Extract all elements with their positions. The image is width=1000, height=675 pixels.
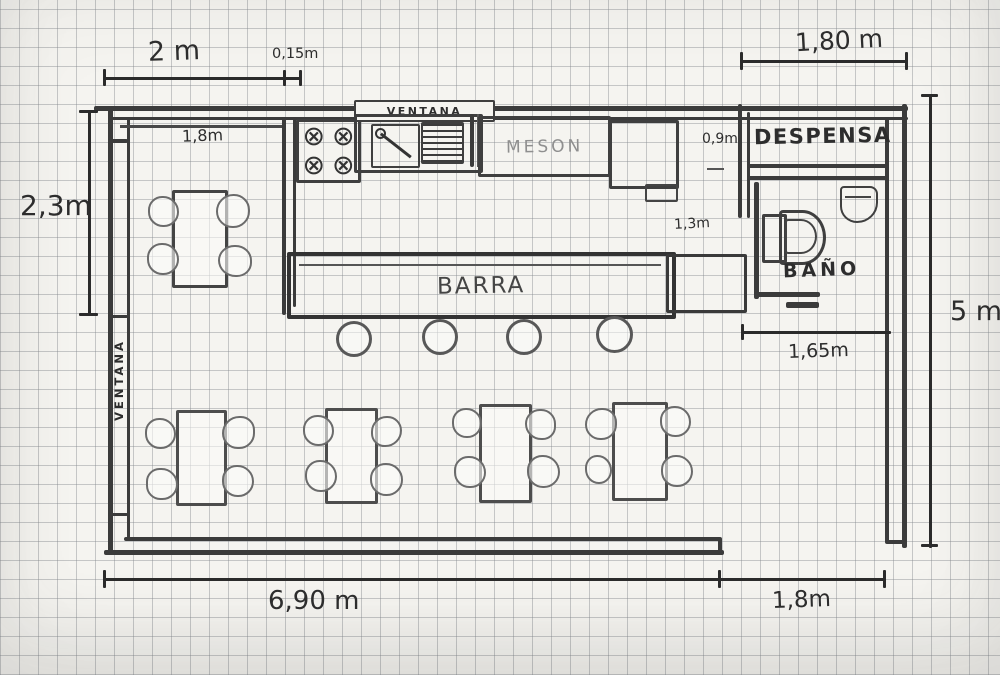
chair	[370, 463, 403, 496]
bar-counter: BARRA	[287, 252, 676, 319]
meson-label: MESON	[506, 136, 584, 157]
dim-tick	[103, 69, 106, 86]
bar-label: BARRA	[437, 272, 526, 300]
sink-basin	[371, 124, 420, 168]
stove-burner-icon: ⊗	[332, 123, 355, 150]
dim-label-kitchen-depth: 2,3m	[20, 192, 92, 220]
wall-bottom-outer	[104, 550, 724, 555]
toilet-bowl	[779, 210, 826, 265]
counter-divider-1	[470, 114, 474, 167]
kitchen-inner-tick	[108, 139, 128, 143]
dim-tick	[299, 70, 302, 86]
dim-tick	[740, 52, 743, 70]
drainboard	[421, 122, 464, 164]
chair	[305, 460, 337, 492]
dim-label-wall-thickness: 0,15m	[272, 47, 318, 62]
bath-sink-inner-line	[845, 196, 871, 198]
pantry-wall-bottom-1	[747, 164, 889, 168]
wall-bottom-end-cap	[718, 537, 722, 555]
kitchen-partition-outer	[282, 117, 286, 315]
stove-burner-icon: ⊗	[302, 123, 325, 150]
passage-dash	[707, 168, 724, 170]
toilet-bowl-inner	[785, 219, 817, 254]
bar-stool	[336, 321, 372, 357]
pantry-wall-bottom-2	[747, 176, 889, 180]
dim-label-bath-width: 1,65m	[788, 341, 849, 362]
dim-tick	[741, 324, 744, 340]
bathroom-label: BAÑO	[783, 260, 861, 282]
bar-stool	[596, 316, 633, 353]
wall-top-outer	[94, 106, 908, 111]
dim-line-top-left	[104, 77, 285, 80]
stove-burner-icon: ⊗	[302, 152, 325, 179]
chair	[454, 456, 486, 488]
dim-line-top-right	[741, 60, 908, 63]
fridge-handle	[645, 184, 678, 202]
dim-tick	[718, 570, 721, 588]
passage-dim-label: 0,9m	[702, 132, 738, 146]
chair	[218, 245, 252, 277]
bar-stool	[506, 319, 542, 355]
dining-table	[176, 410, 227, 506]
wall-right-inner	[885, 117, 889, 543]
meson-counter: MESON	[478, 116, 611, 177]
wall-right-outer	[902, 104, 907, 548]
chair	[525, 409, 556, 440]
dim-tick	[921, 544, 938, 547]
bath-offset-dim-label: 1,3m	[674, 216, 711, 232]
bathroom-wall-bottom	[754, 292, 820, 297]
dim-tick	[921, 94, 938, 97]
chair	[585, 408, 617, 440]
chair	[452, 408, 482, 438]
left-window-label: VENTANA	[114, 318, 130, 442]
bar-extension	[666, 254, 747, 313]
dim-tick	[79, 110, 98, 113]
dim-line-bath-width	[742, 331, 891, 334]
chair	[145, 418, 176, 449]
dim-label-bottom-main: 6,90 m	[268, 588, 359, 614]
bathroom-door	[786, 302, 819, 308]
chair	[148, 196, 179, 227]
bar-inner-line	[299, 264, 661, 266]
sink-counter	[354, 114, 483, 173]
dim-label-bottom-right: 1,8m	[772, 588, 832, 613]
pantry-partition-outer	[738, 104, 742, 218]
chair	[661, 455, 693, 487]
dim-tick	[883, 570, 886, 588]
chair	[216, 194, 250, 228]
dim-label-total-height: 5 m	[950, 298, 1000, 325]
bath-sink	[840, 186, 878, 223]
fridge	[609, 120, 679, 189]
chair	[147, 243, 179, 275]
dim-line-total-height	[929, 95, 932, 548]
pantry-label: DESPENSA	[754, 125, 892, 148]
chair	[146, 468, 178, 500]
bar-stool	[422, 319, 458, 355]
chair	[222, 416, 255, 449]
wall-left-outer	[108, 106, 113, 553]
chair	[527, 455, 560, 488]
dining-table	[479, 404, 532, 503]
chair	[371, 416, 402, 447]
dim-line-bottom	[104, 578, 886, 581]
dim-tick	[103, 570, 106, 588]
stove: ⊗ ⊗ ⊗ ⊗	[296, 119, 361, 183]
dim-tick	[905, 52, 908, 70]
dim-label-top-left: 2 m	[148, 37, 201, 66]
chair	[303, 415, 334, 446]
bathroom-wall-left	[754, 182, 759, 299]
chair	[660, 406, 691, 437]
sink-faucet-line	[380, 133, 411, 158]
dim-tick	[79, 313, 98, 316]
dim-label-top-right: 1,80 m	[794, 26, 883, 56]
left-window-tick-bottom	[108, 513, 128, 516]
wall-right-foot	[885, 540, 906, 544]
floor-plan: ⊗ ⊗ ⊗ ⊗ VENTANA MESON DESPENSA 0,9m BAÑO…	[0, 0, 1000, 675]
stove-burner-icon: ⊗	[332, 152, 355, 179]
dim-label-kitchen-inner: 1,8m	[182, 127, 224, 144]
chair	[222, 465, 254, 497]
chair	[585, 455, 612, 484]
dining-table	[325, 408, 378, 504]
wall-bottom-inner	[124, 537, 721, 541]
